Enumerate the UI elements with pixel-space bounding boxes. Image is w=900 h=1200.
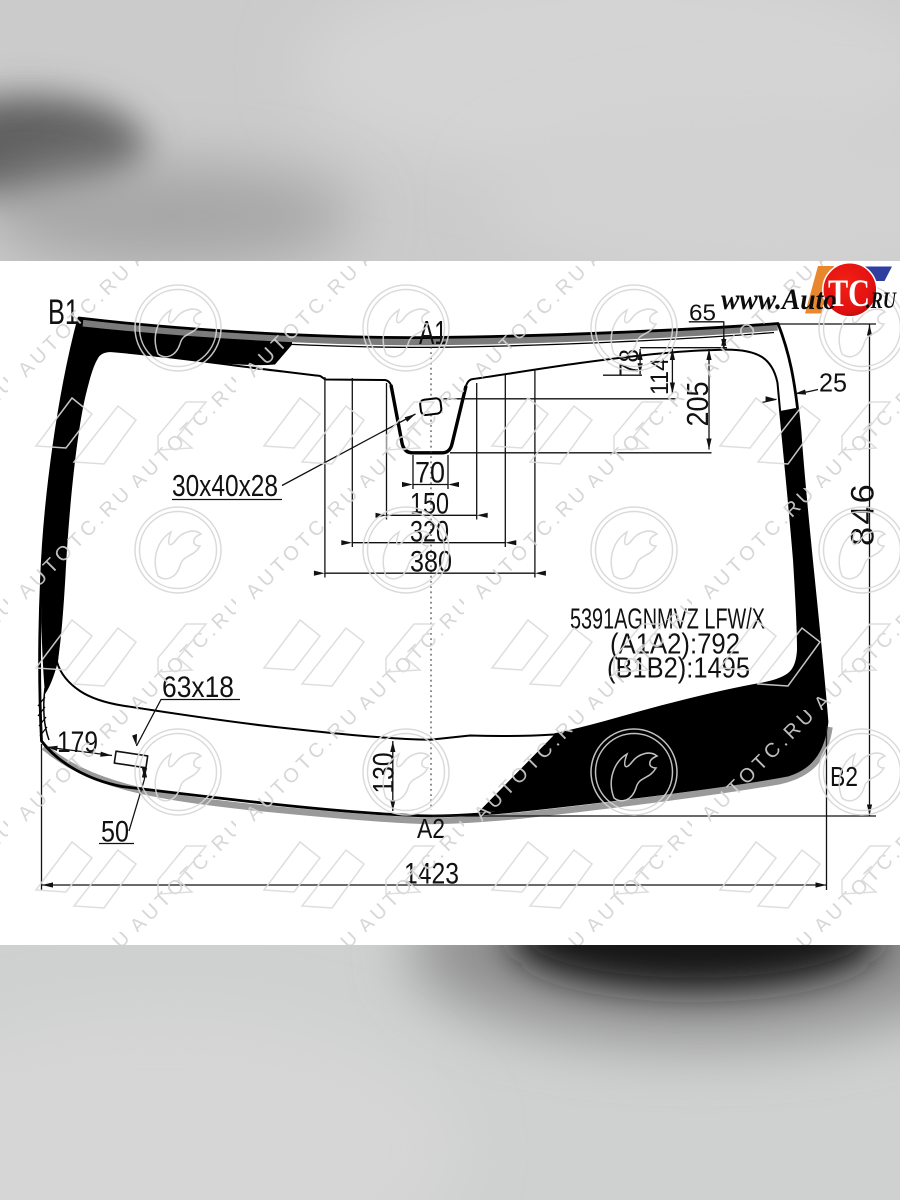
svg-text:www.Auto: www.Auto <box>721 283 837 316</box>
svg-text:TC: TC <box>828 272 870 315</box>
svg-text:.RU: .RU <box>866 288 897 313</box>
